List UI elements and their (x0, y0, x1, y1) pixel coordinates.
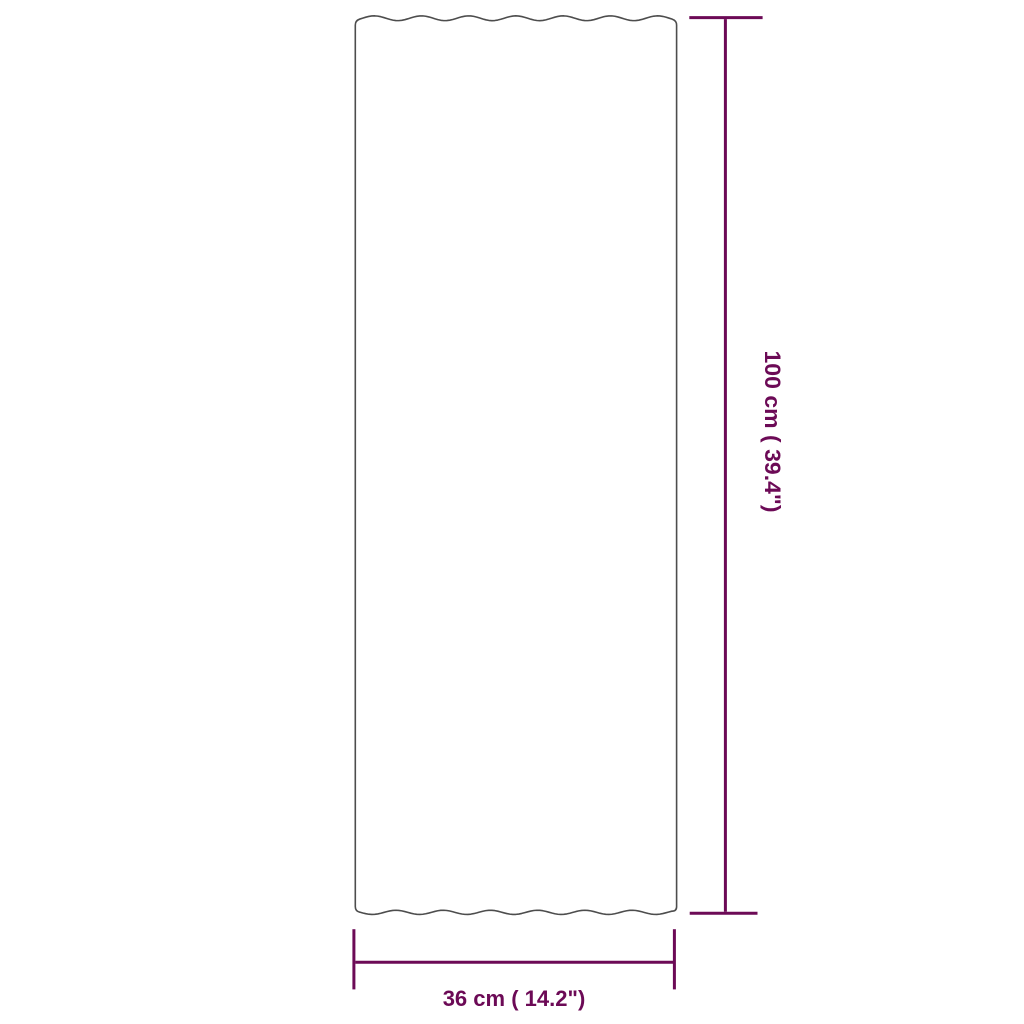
svg-text:36 cm ( 14.2"): 36 cm ( 14.2") (443, 986, 586, 1011)
svg-text:100 cm ( 39.4"): 100 cm ( 39.4") (760, 351, 785, 513)
